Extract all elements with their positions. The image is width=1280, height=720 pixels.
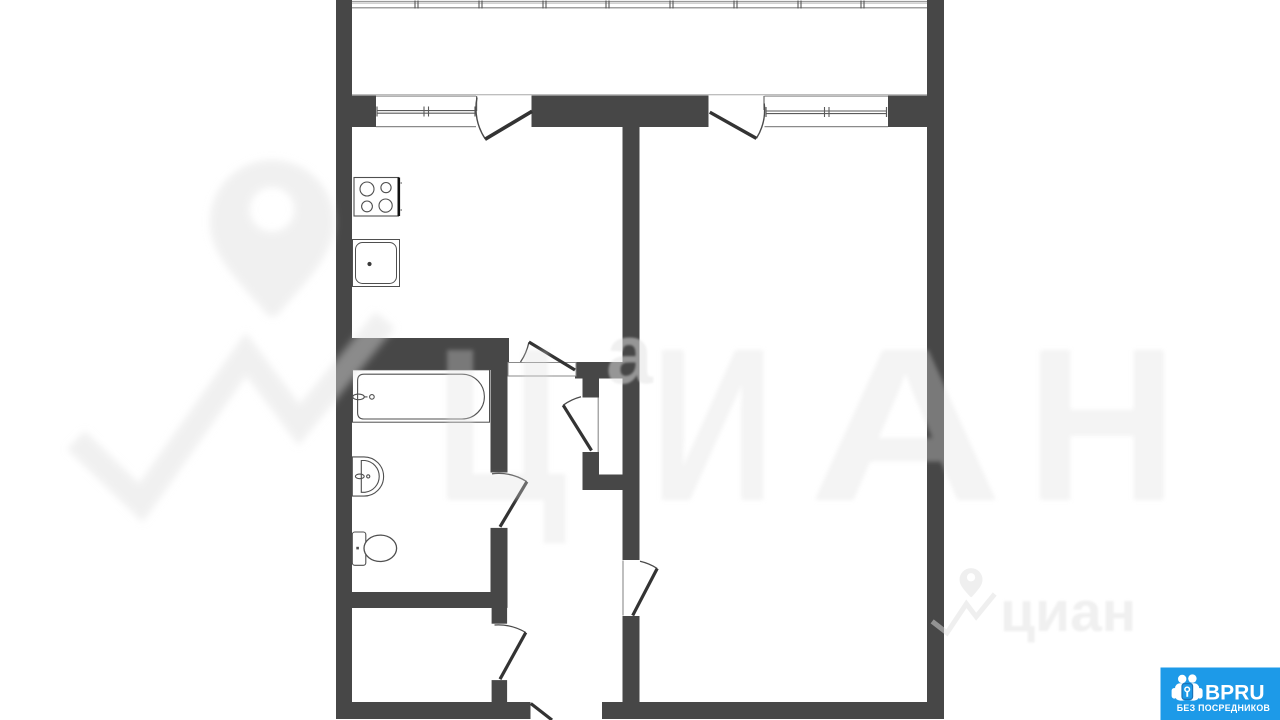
svg-text:Н: Н: [1026, 304, 1178, 547]
svg-text:А: А: [808, 304, 1003, 547]
svg-text:БЕЗ ПОСРЕДНИКОВ: БЕЗ ПОСРЕДНИКОВ: [1177, 703, 1270, 713]
svg-text:И: И: [650, 304, 775, 547]
svg-text:циан: циан: [1000, 580, 1136, 644]
svg-text:BPRU: BPRU: [1205, 682, 1265, 705]
svg-text:а: а: [606, 307, 654, 401]
svg-text:Ц: Ц: [435, 304, 567, 547]
